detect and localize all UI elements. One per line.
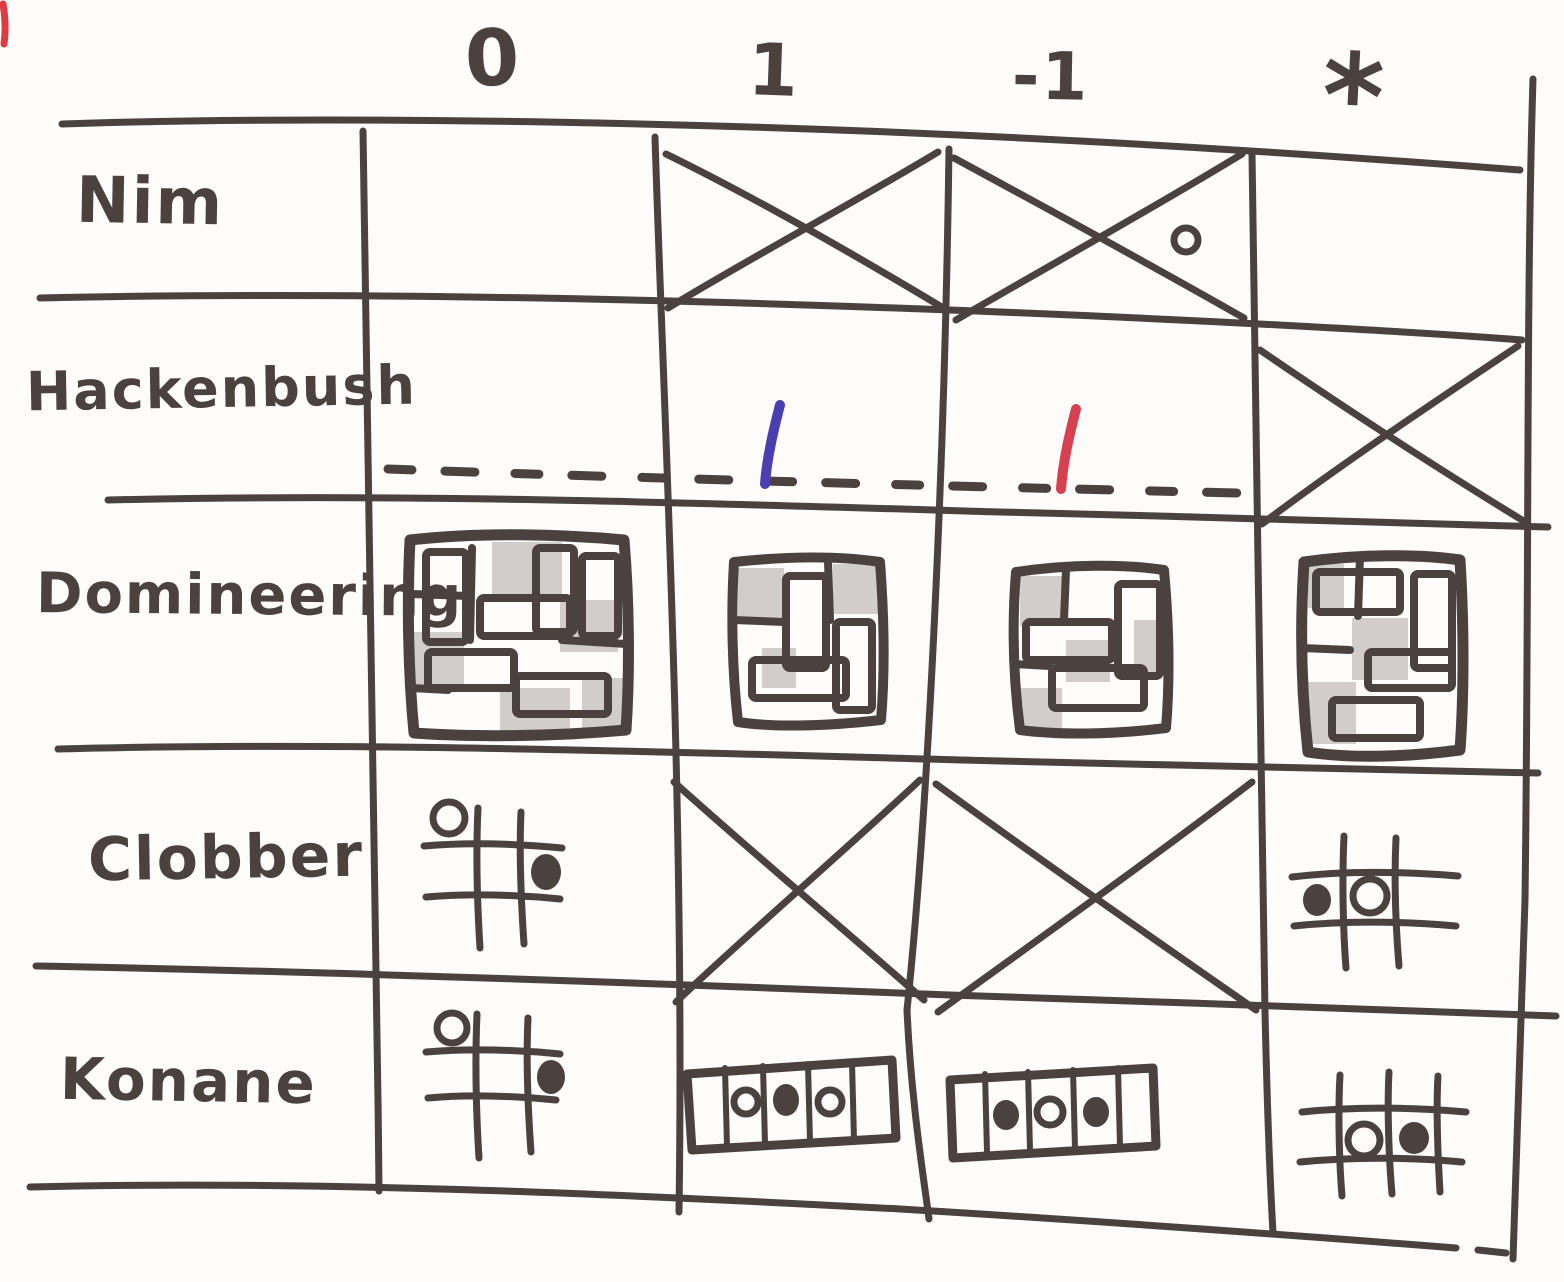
hackenbush-star-cross-icon	[1260, 346, 1522, 524]
white-stone	[1037, 1099, 1063, 1125]
black-stone	[531, 854, 561, 890]
white-stone	[1353, 879, 1387, 913]
horizontal-rule-below-clobber	[36, 966, 1556, 1016]
black-stone	[1303, 884, 1331, 916]
vertical-rule-negone-star	[1252, 153, 1273, 1233]
row-label-konane: Konane	[60, 1050, 318, 1112]
white-stone	[1348, 1124, 1380, 1156]
konane-zero-position-icon	[426, 1013, 565, 1158]
vertical-rule-right-border	[1513, 79, 1533, 1259]
domineering-star-board-icon	[1302, 556, 1463, 757]
scan-artifact-red-mark	[3, 4, 5, 44]
hackenbush-blue-edge-icon	[765, 405, 780, 484]
horizontal-rule-below-hackenbush	[108, 498, 1548, 527]
white-stone	[433, 802, 465, 834]
column-header-zero: 0	[464, 19, 523, 99]
domineering-negone-board-icon	[1014, 566, 1169, 734]
konane-one-strip-icon	[687, 1060, 896, 1150]
clobber-zero-position-icon	[424, 802, 562, 948]
column-header-one: 1	[747, 33, 802, 107]
row-label-nim: Nim	[75, 169, 224, 236]
hackenbush-red-edge-icon	[1061, 409, 1076, 489]
hand-drawn-game-value-table: 0 1 -1 * Nim Hackenbush Domineering Clob…	[0, 0, 1564, 1282]
clobber-one-cross-icon	[674, 780, 924, 1002]
row-label-clobber: Clobber	[87, 826, 364, 891]
black-stone	[1399, 1122, 1429, 1154]
black-stone	[1083, 1097, 1109, 1127]
row-label-hackenbush: Hackenbush	[26, 359, 418, 420]
vertical-rule-labels-zero	[363, 131, 379, 1191]
column-header-negative-one: -1	[1011, 43, 1089, 110]
column-header-star: *	[1319, 36, 1389, 157]
horizontal-rule-bottom	[30, 1185, 1456, 1248]
nim-star-stone-icon	[1174, 228, 1198, 252]
clobber-negone-cross-icon	[936, 782, 1256, 1012]
hackenbush-dashed-ground	[388, 469, 1238, 493]
white-stone	[818, 1090, 842, 1114]
konane-star-position-icon	[1300, 1072, 1466, 1196]
white-stone	[437, 1013, 467, 1043]
black-stone	[993, 1100, 1019, 1130]
domineering-one-board-icon	[732, 558, 883, 726]
horizontal-rule-below-nim	[40, 296, 1522, 340]
horizontal-rule-top	[62, 120, 1520, 170]
row-label-domineering: Domineering	[36, 566, 464, 626]
nim-one-cross-icon	[666, 152, 940, 308]
konane-negone-strip-icon	[950, 1068, 1156, 1158]
clobber-star-position-icon	[1292, 836, 1458, 968]
white-stone	[734, 1090, 758, 1114]
black-stone	[773, 1084, 799, 1116]
black-stone	[537, 1060, 565, 1094]
horizontal-rule-bottom-dash	[1478, 1250, 1506, 1253]
